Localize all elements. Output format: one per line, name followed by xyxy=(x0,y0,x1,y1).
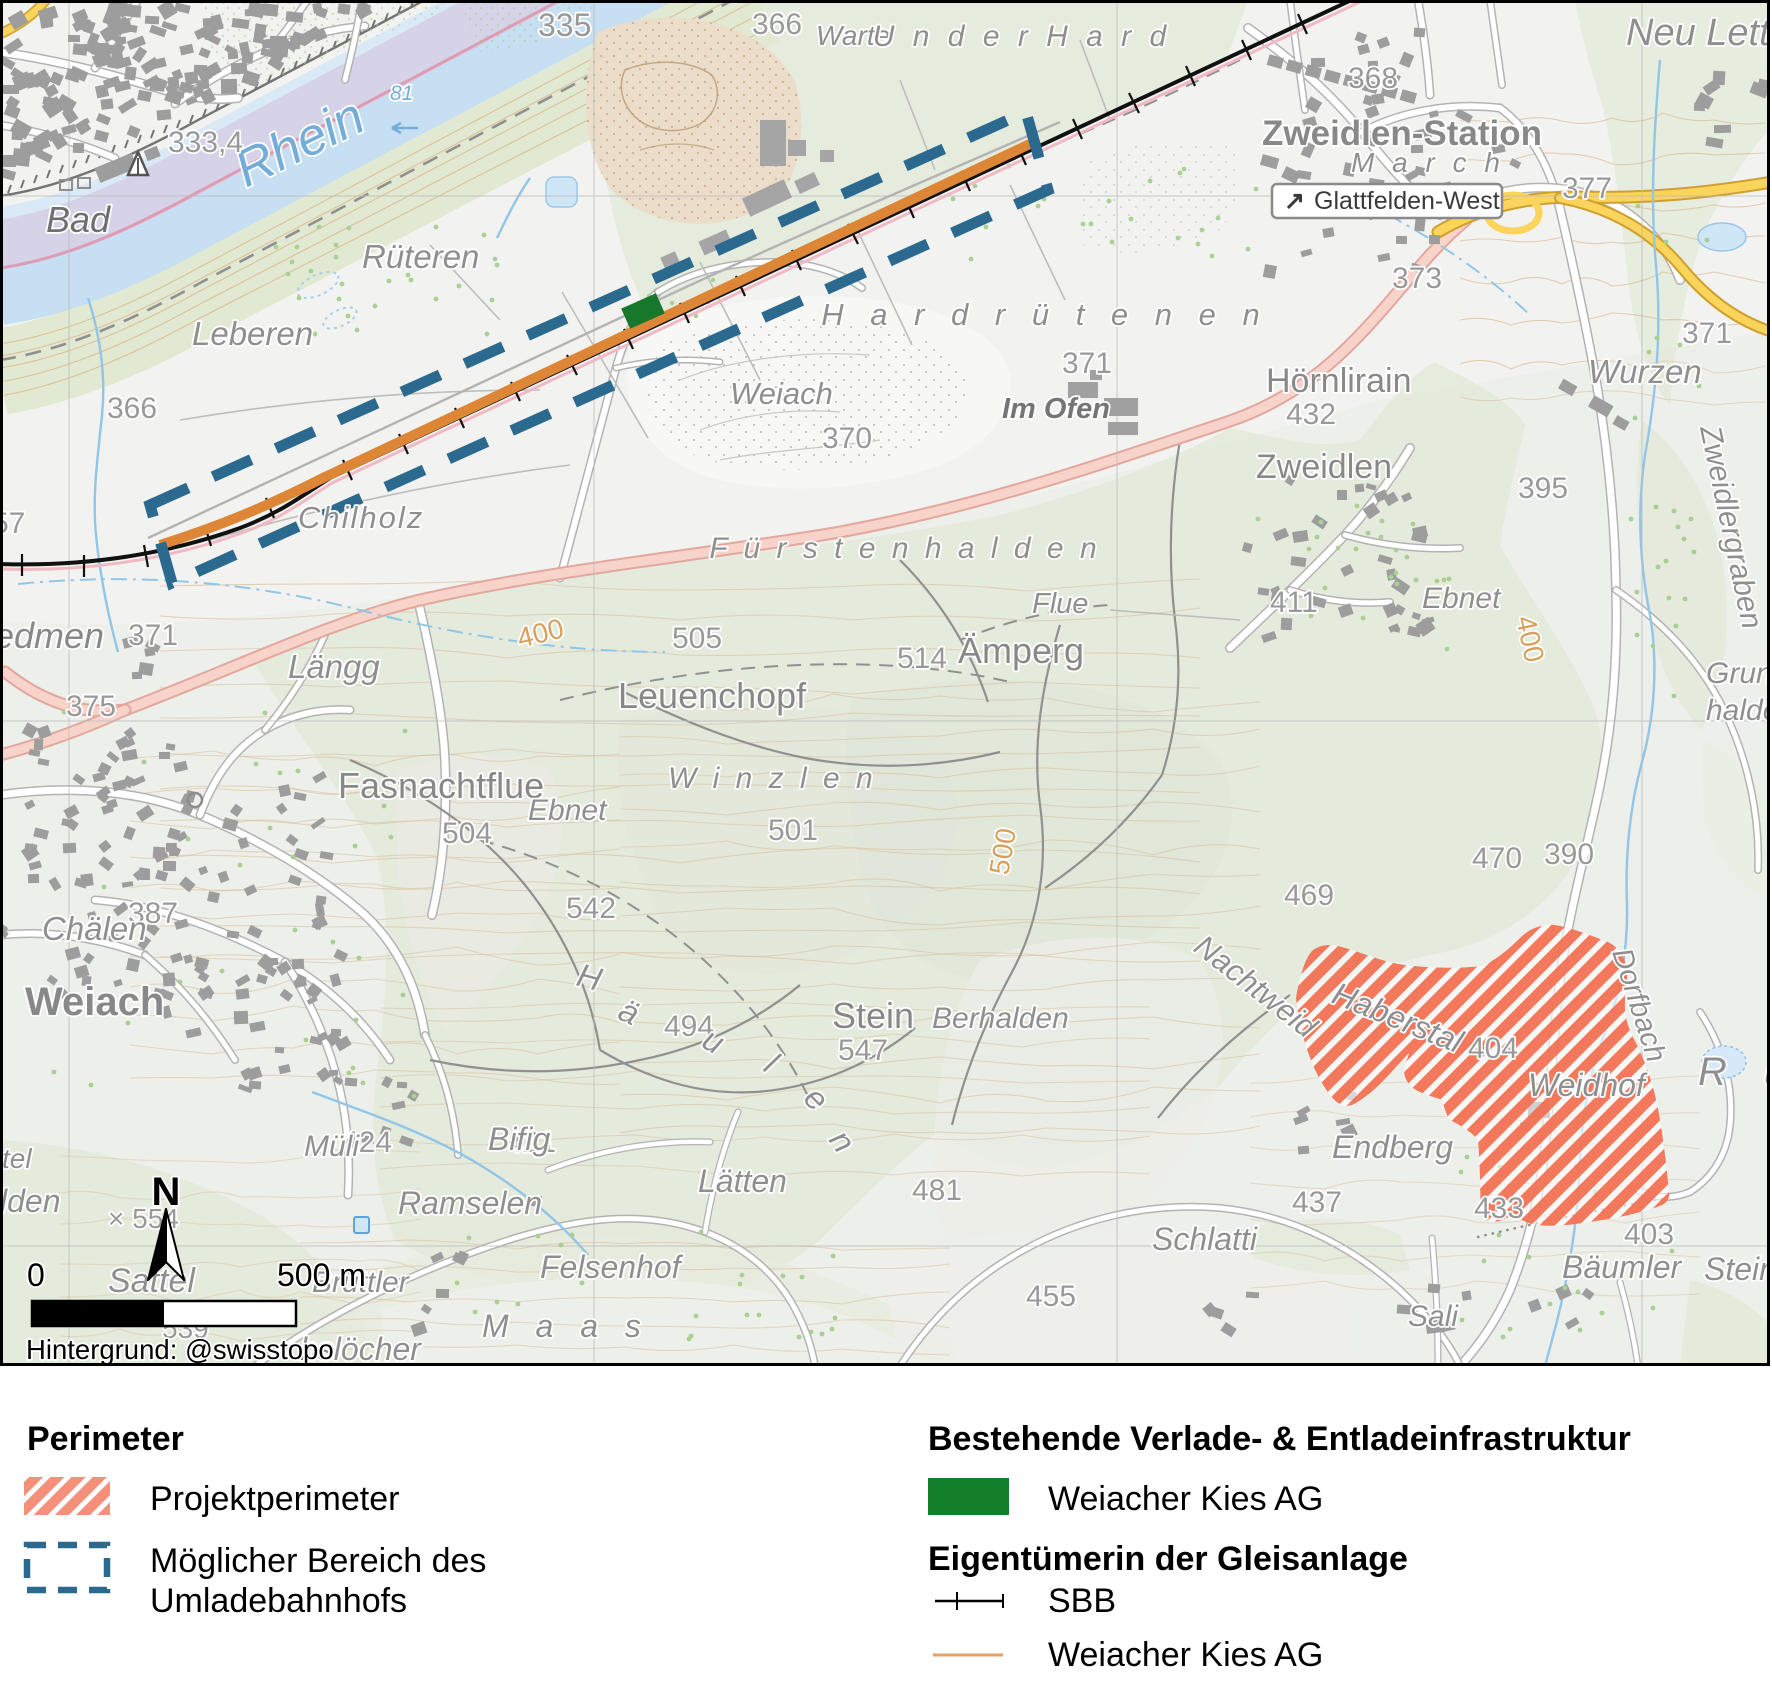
svg-text:Hintergrund: @swisstopo: Hintergrund: @swisstopo xyxy=(26,1334,334,1365)
svg-text:368: 368 xyxy=(1348,62,1398,95)
svg-text:F ü r s t e n h a l d e n: F ü r s t e n h a l d e n xyxy=(709,532,1100,565)
svg-text:R ü t: R ü t xyxy=(1698,1050,1772,1094)
svg-text:81: 81 xyxy=(390,82,413,105)
svg-text:403: 403 xyxy=(1624,1218,1674,1251)
svg-text:411: 411 xyxy=(1270,586,1318,619)
svg-text:514: 514 xyxy=(897,642,947,675)
svg-text:Zweidlen: Zweidlen xyxy=(1256,448,1392,486)
svg-text:370: 370 xyxy=(822,422,872,455)
svg-text:M a a s: M a a s xyxy=(482,1308,650,1344)
svg-text:Chälen: Chälen xyxy=(42,910,147,947)
svg-text:Bad: Bad xyxy=(46,199,111,240)
svg-text:Fasnachtflue: Fasnachtflue xyxy=(338,765,544,806)
svg-text:366: 366 xyxy=(107,392,157,425)
svg-text:371: 371 xyxy=(1682,317,1732,350)
svg-text:Felsenhof: Felsenhof xyxy=(540,1249,684,1285)
svg-text:371: 371 xyxy=(128,619,178,652)
svg-text:501: 501 xyxy=(768,814,818,847)
svg-text:Ramselen: Ramselen xyxy=(398,1185,542,1221)
svg-text:Ebnet: Ebnet xyxy=(528,794,608,827)
svg-text:375: 375 xyxy=(66,690,116,723)
svg-text:Ämperg: Ämperg xyxy=(958,630,1084,671)
svg-text:Möglicher Bereich des: Möglicher Bereich des xyxy=(150,1542,486,1580)
svg-text:M a r c h: M a r c h xyxy=(1351,147,1505,178)
svg-text:373: 373 xyxy=(1392,262,1442,295)
svg-text:Leberen: Leberen xyxy=(192,315,313,352)
svg-text:481: 481 xyxy=(912,1174,962,1207)
svg-text:Sali: Sali xyxy=(1408,1300,1459,1333)
svg-text:N: N xyxy=(152,1170,181,1214)
svg-text:455: 455 xyxy=(1026,1280,1076,1313)
svg-text:542: 542 xyxy=(566,892,616,925)
svg-text:Weiacher Kies AG: Weiacher Kies AG xyxy=(1048,1636,1323,1674)
svg-text:Projektperimeter: Projektperimeter xyxy=(150,1480,399,1518)
svg-text:Grund: Grund xyxy=(1706,657,1772,690)
svg-text:Weiach: Weiach xyxy=(25,980,164,1024)
svg-text:335: 335 xyxy=(538,7,591,43)
svg-text:Ebnet: Ebnet xyxy=(1422,582,1502,615)
svg-text:366: 366 xyxy=(752,8,802,41)
svg-text:Perimeter: Perimeter xyxy=(27,1420,184,1458)
svg-text:Eigentümerin der Gleisanlage: Eigentümerin der Gleisanlage xyxy=(928,1540,1408,1578)
svg-text:Bifig: Bifig xyxy=(488,1121,550,1157)
svg-text:Weiacher Kies AG: Weiacher Kies AG xyxy=(1048,1480,1323,1518)
svg-text:Müli: Müli xyxy=(304,1130,360,1163)
svg-text:↗: ↗ xyxy=(1284,187,1305,215)
svg-text:437: 437 xyxy=(1292,1186,1342,1219)
svg-text:Bäumler: Bäumler xyxy=(1562,1249,1683,1285)
svg-text:Bestehende Verlade- & Entladei: Bestehende Verlade- & Entladeinfrastrukt… xyxy=(928,1420,1631,1458)
svg-text:469: 469 xyxy=(1284,879,1334,912)
svg-text:390: 390 xyxy=(1544,838,1594,871)
svg-text:W i n z l e n: W i n z l e n xyxy=(668,762,877,795)
svg-text:505: 505 xyxy=(672,622,722,655)
svg-text:lden: lden xyxy=(0,1183,61,1219)
svg-text:Längg: Längg xyxy=(288,648,380,685)
svg-text:Glattfelden-West: Glattfelden-West xyxy=(1314,187,1500,215)
svg-text:Rüteren: Rüteren xyxy=(362,238,479,275)
svg-text:404: 404 xyxy=(1468,1032,1518,1065)
svg-text:395: 395 xyxy=(1518,472,1568,505)
svg-text:433: 433 xyxy=(1474,1192,1524,1225)
svg-text:Stein: Stein xyxy=(832,995,914,1036)
svg-text:500 m: 500 m xyxy=(277,1257,366,1293)
svg-text:57: 57 xyxy=(0,507,25,540)
svg-text:Umladebahnhofs: Umladebahnhofs xyxy=(150,1582,407,1620)
svg-text:Flue: Flue xyxy=(1032,588,1088,620)
svg-text:Steina: Steina xyxy=(1704,1251,1772,1287)
svg-text:432: 432 xyxy=(1286,398,1336,431)
svg-text:Weidhof: Weidhof xyxy=(1528,1067,1648,1103)
svg-text:Wurzen: Wurzen xyxy=(1588,353,1702,390)
svg-text:Endberg: Endberg xyxy=(1332,1129,1453,1165)
svg-text:SBB: SBB xyxy=(1048,1582,1116,1620)
svg-text:Schlatti: Schlatti xyxy=(1152,1221,1258,1257)
svg-text:Neu Letten: Neu Letten xyxy=(1626,12,1772,54)
svg-text:Im Ofen: Im Ofen xyxy=(1002,393,1110,425)
svg-text:Weiach: Weiach xyxy=(730,376,833,411)
svg-text:Hörnlirain: Hörnlirain xyxy=(1266,362,1412,400)
svg-text:tel: tel xyxy=(2,1143,32,1174)
svg-text:0: 0 xyxy=(27,1257,45,1293)
svg-text:333,4: 333,4 xyxy=(168,126,243,159)
svg-text:371: 371 xyxy=(1062,347,1112,380)
svg-text:547: 547 xyxy=(838,1034,888,1067)
svg-text:halden: halden xyxy=(1706,694,1772,727)
svg-text:H a r d r ü t e n e n: H a r d r ü t e n e n xyxy=(821,297,1268,332)
svg-text:504: 504 xyxy=(442,817,492,850)
svg-text:Leuenchopf: Leuenchopf xyxy=(618,675,807,716)
svg-text:Chilholz: Chilholz xyxy=(298,500,424,535)
svg-text:U n d e r H a r d: U n d e r H a r d xyxy=(873,20,1171,53)
svg-text:Berhalden: Berhalden xyxy=(932,1002,1069,1035)
svg-text:edmen: edmen xyxy=(0,615,104,656)
svg-text:Lätten: Lätten xyxy=(698,1163,787,1199)
svg-text:377: 377 xyxy=(1562,172,1612,205)
svg-text:470: 470 xyxy=(1472,842,1522,875)
